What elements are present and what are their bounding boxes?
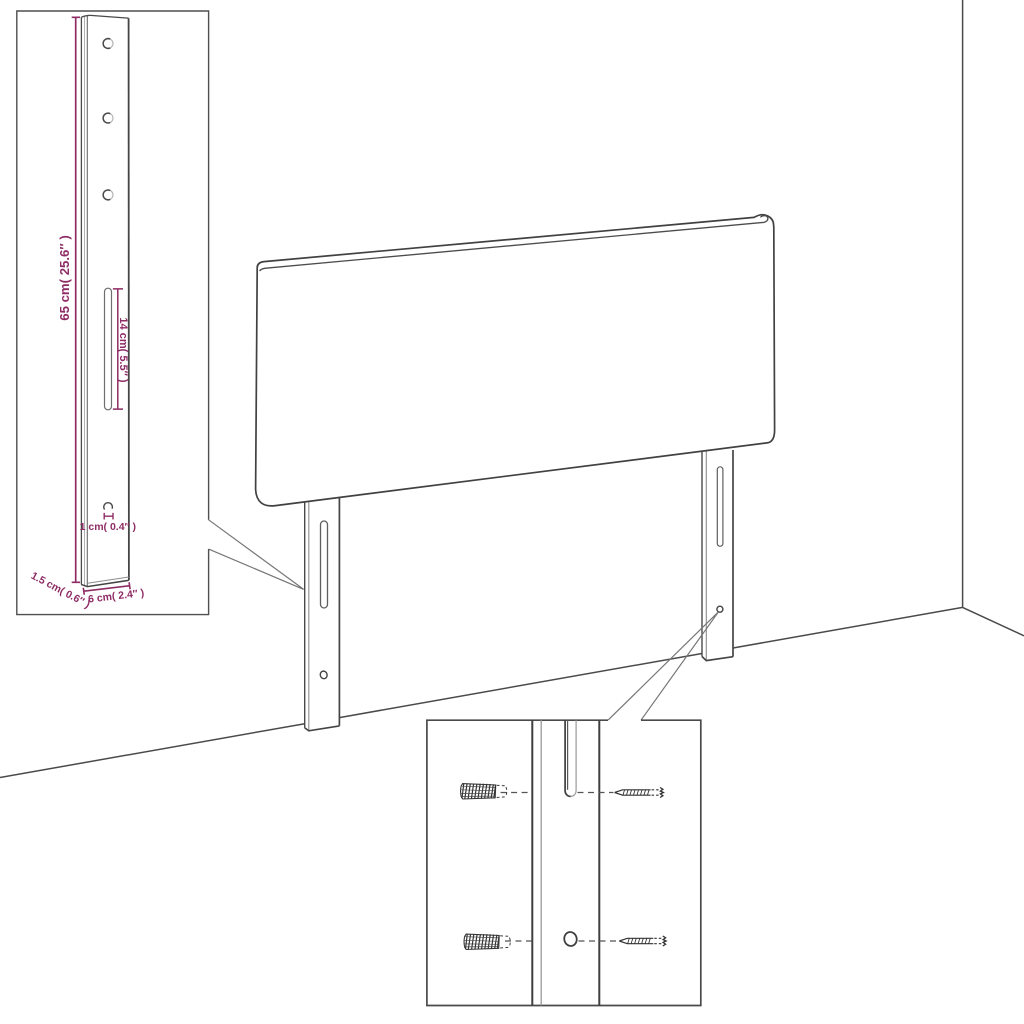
- svg-text:65 cm( 25.6″ ): 65 cm( 25.6″ ): [57, 235, 72, 321]
- svg-text:14 cm( 5.5″ ): 14 cm( 5.5″ ): [117, 317, 129, 383]
- svg-text:1 cm( 0.4″ ): 1 cm( 0.4″ ): [80, 521, 136, 533]
